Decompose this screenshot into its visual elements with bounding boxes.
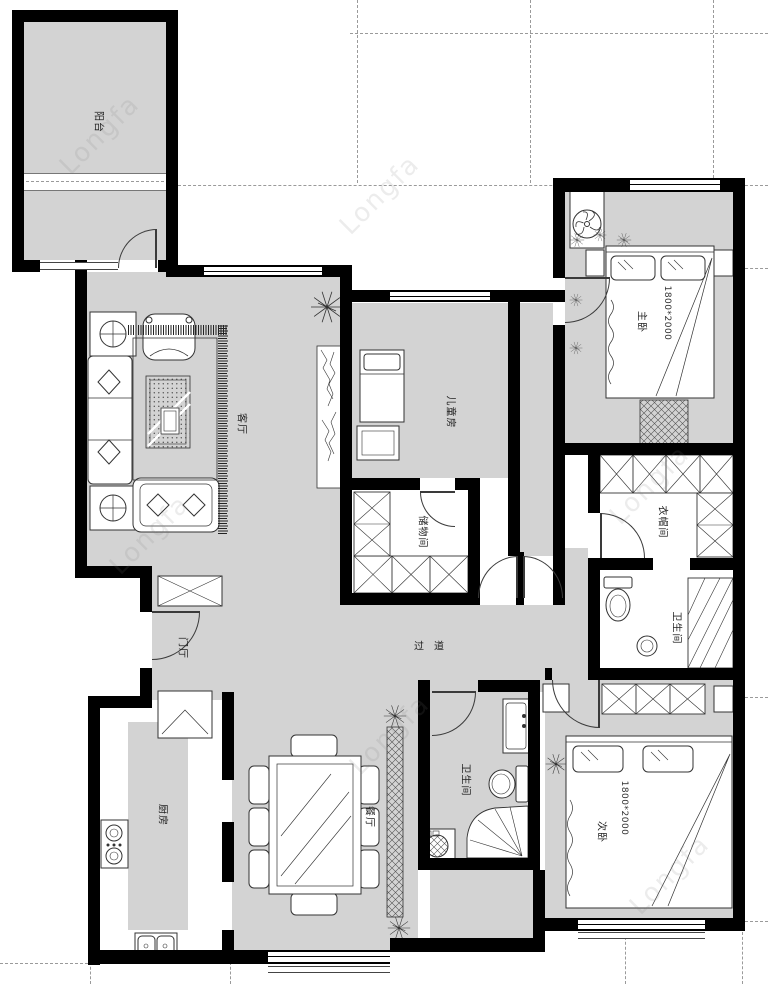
wall <box>588 558 653 570</box>
wall <box>533 870 545 950</box>
fridge <box>158 691 212 738</box>
wall <box>88 696 100 965</box>
wall <box>352 478 420 490</box>
window-sill <box>268 966 390 973</box>
wall <box>690 558 745 570</box>
wall <box>490 290 565 302</box>
side-table <box>90 486 136 530</box>
room-label-master: 主卧 <box>636 311 651 333</box>
room-label-bathroom: 卫生间 <box>460 764 475 797</box>
wall <box>588 558 600 680</box>
door-leaf <box>523 556 525 598</box>
door-leaf <box>516 556 518 598</box>
plant-icon <box>384 705 406 726</box>
wall <box>553 325 565 605</box>
room-label-second: 次卧 <box>596 821 611 843</box>
vanity-icon <box>503 699 529 753</box>
door-leaf <box>432 691 476 693</box>
wall <box>352 290 390 302</box>
wall <box>553 178 565 278</box>
shoe-cabinet <box>158 576 222 606</box>
wall <box>75 566 152 578</box>
wall <box>545 668 552 680</box>
loveseat <box>133 478 219 532</box>
wall <box>166 265 204 277</box>
room-label-balcony: 阳台 <box>93 111 108 133</box>
master-bed <box>606 246 714 398</box>
wall <box>222 692 234 780</box>
wall <box>222 822 234 882</box>
wall <box>418 858 540 870</box>
carpet <box>146 376 190 448</box>
wall <box>528 680 540 870</box>
room-label-kitchen: 厨房 <box>157 804 172 826</box>
wall <box>588 443 600 513</box>
dining-table <box>249 735 379 915</box>
wall <box>533 918 578 931</box>
sink-icon <box>637 636 657 656</box>
bed-size-master: 1800*2000 <box>662 286 672 341</box>
room-label-cloakroom: 衣帽间 <box>657 506 672 539</box>
bed-bench <box>640 400 688 444</box>
wall <box>88 950 268 964</box>
wall <box>733 178 745 931</box>
wall <box>340 593 480 605</box>
window <box>204 265 322 277</box>
door-leaf <box>155 229 157 268</box>
plant-icon <box>546 754 567 774</box>
wall <box>140 578 152 612</box>
room-label-storage: 储物间 <box>417 516 432 549</box>
wall <box>418 680 430 870</box>
bed-size-second: 1800*2000 <box>619 781 629 836</box>
door-leaf <box>565 277 610 279</box>
room-label-living: 客厅 <box>236 413 251 435</box>
stove-icon <box>101 820 128 868</box>
wall <box>12 10 24 272</box>
wall <box>340 265 352 605</box>
wall <box>720 178 745 192</box>
door-leaf <box>600 513 602 558</box>
plant-icon <box>311 292 343 322</box>
window-sill <box>578 932 705 939</box>
wall <box>222 930 234 952</box>
plant-icon <box>617 233 631 247</box>
furniture-layer <box>0 0 768 984</box>
wall <box>468 480 480 605</box>
wall <box>12 10 178 22</box>
wall <box>553 443 745 455</box>
plant-icon <box>388 917 410 938</box>
door-leaf <box>420 491 455 493</box>
room-label-children: 儿童房 <box>445 396 460 429</box>
sofa <box>88 356 132 484</box>
children-desk <box>357 426 399 460</box>
wall <box>88 696 152 708</box>
plant-icon <box>570 342 583 354</box>
dining-cabinet <box>387 727 403 917</box>
wall <box>600 668 745 680</box>
window <box>390 290 490 302</box>
wall <box>166 10 178 272</box>
shower-icon <box>688 578 733 668</box>
wall <box>390 938 545 952</box>
wardrobe <box>602 684 705 714</box>
room-label-foyer: 门厅 <box>177 637 192 659</box>
toilet-icon <box>604 577 632 621</box>
floor-plan: 阳台 客厅 儿童房 主卧 1800*2000 衣帽间 卫生间 储物间 过道 门厅… <box>0 0 768 984</box>
armchair <box>143 314 195 360</box>
room-label-master-bath: 卫生间 <box>671 612 686 645</box>
door-leaf <box>152 611 200 613</box>
wall <box>12 260 40 272</box>
room-label-dining: 餐厅 <box>364 806 379 828</box>
window <box>630 178 720 192</box>
door-leaf <box>598 680 600 728</box>
second-bed <box>566 736 732 908</box>
wall <box>75 260 87 578</box>
balcony-sill <box>40 262 118 270</box>
room-label-hallway: 过道 <box>414 638 454 653</box>
children-bed <box>360 350 404 422</box>
shower-icon <box>467 806 528 858</box>
window <box>578 918 705 931</box>
toilet-icon <box>489 766 528 802</box>
window <box>268 950 390 964</box>
wall <box>508 290 520 556</box>
